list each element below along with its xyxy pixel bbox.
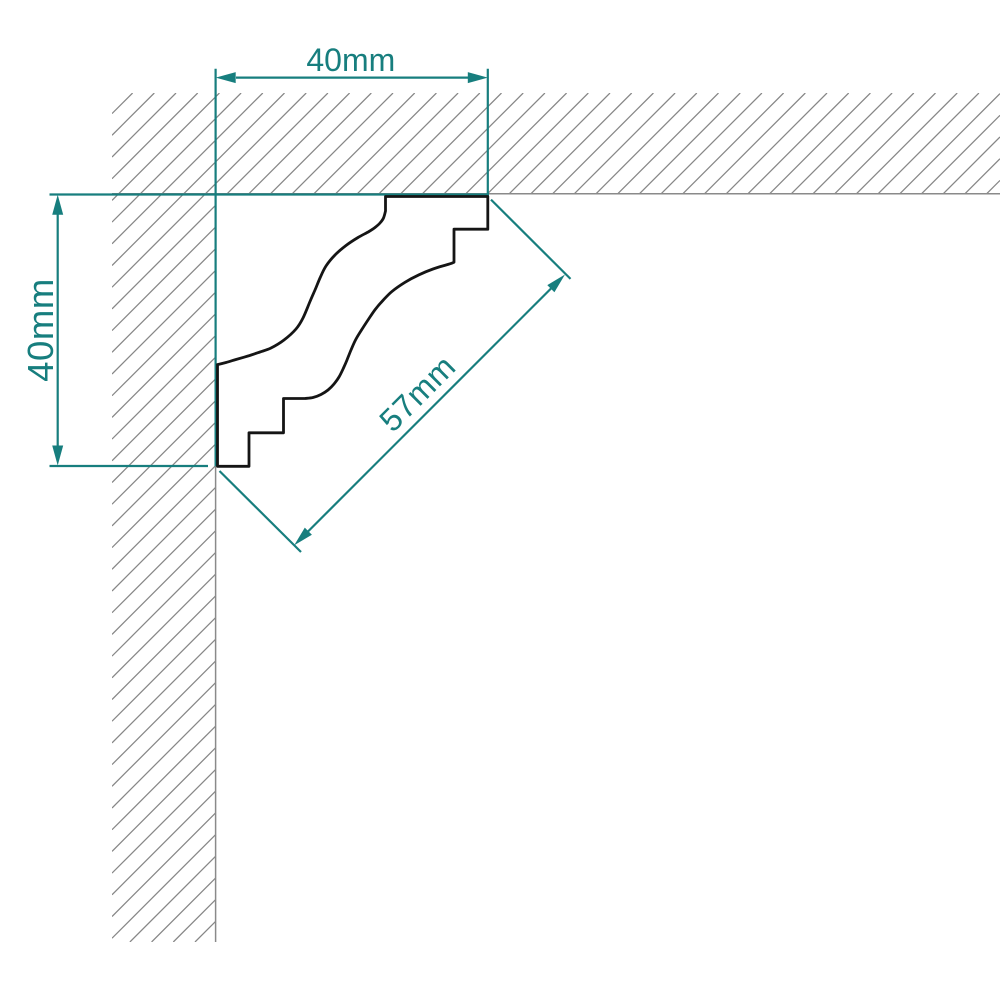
svg-text:57mm: 57mm	[372, 348, 463, 439]
svg-text:40mm: 40mm	[20, 278, 61, 382]
svg-text:40mm: 40mm	[306, 42, 395, 78]
